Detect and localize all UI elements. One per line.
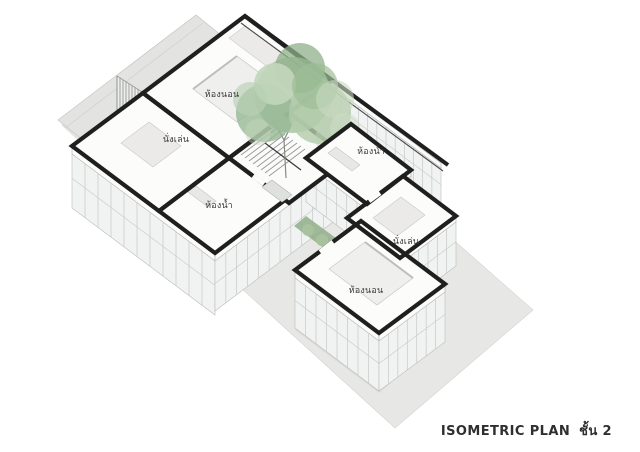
room-label-bedroom-upper: ห้องนอน: [205, 89, 240, 100]
plan-caption-title: ISOMETRIC PLAN: [441, 424, 570, 439]
room-label-bedroom-lower: ห้องนอน: [349, 285, 384, 296]
plan-caption-floor: ชั้น 2: [579, 420, 612, 439]
architectural-drawing-page: ห้องนอน นั่งเล่น ห้องน้ำ ห้องน้ำ นั่งเล่…: [0, 0, 640, 452]
plan-caption: ISOMETRIC PLANชั้น 2: [441, 420, 612, 439]
isometric-plan-drawing: ห้องนอน นั่งเล่น ห้องน้ำ ห้องน้ำ นั่งเล่…: [0, 0, 640, 452]
